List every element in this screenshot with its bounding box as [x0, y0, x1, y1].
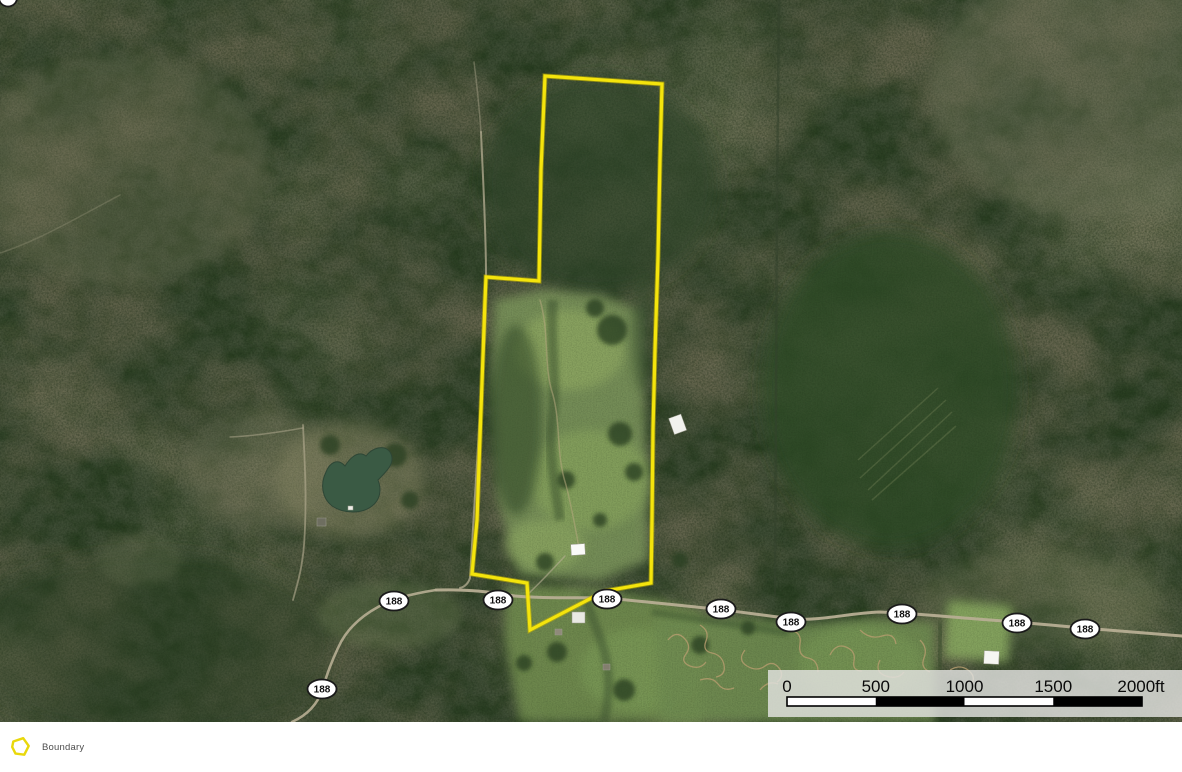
- road-shield: 188: [777, 613, 806, 632]
- scale-tick-label: 1500: [1034, 677, 1072, 696]
- road-shield-label: 188: [490, 596, 507, 607]
- shed-gray-1: [555, 629, 562, 635]
- map-view[interactable]: 188 188 188 188 188: [0, 0, 1182, 722]
- scale-tick-label: 2000ft: [1117, 677, 1165, 696]
- road-shield: 188: [1003, 614, 1032, 633]
- satellite-terrain: [0, 0, 1182, 722]
- road-shield-label: 188: [1077, 625, 1094, 636]
- scale-tick-label: 1000: [946, 677, 984, 696]
- scale-bar-segment-black: [1053, 697, 1142, 706]
- road-shield-label: 188: [783, 618, 800, 629]
- road-shield: 188: [888, 605, 917, 624]
- shed-dock: [348, 506, 353, 510]
- road-shield: 188: [380, 592, 409, 611]
- map-legend: Boundary: [0, 722, 1182, 772]
- scale-tick-label: 500: [862, 677, 890, 696]
- page: 188 188 188 188 188: [0, 0, 1182, 772]
- house-white: [571, 544, 586, 556]
- road-shield-label: 188: [1009, 619, 1026, 630]
- road-shield-label: 188: [386, 597, 403, 608]
- shed-dark: [317, 518, 326, 526]
- road-shield-label: 188: [894, 610, 911, 621]
- road-shield: 188: [707, 600, 736, 619]
- shed-gray-2: [603, 664, 610, 670]
- road-shield-label: 188: [599, 595, 616, 606]
- legend-item-label: Boundary: [42, 742, 84, 753]
- boundary-polygon-icon: [10, 736, 32, 758]
- scale-tick-label: 0: [782, 677, 791, 696]
- road-shield: 188: [308, 680, 337, 699]
- scale-bar-segment-black: [876, 697, 965, 706]
- road-shield: 188: [1071, 620, 1100, 639]
- barn-white-east: [984, 651, 1000, 665]
- road-shield-label: 188: [314, 685, 331, 696]
- road-shield: 188: [484, 591, 513, 610]
- road-shield-label: 188: [713, 605, 730, 616]
- scale-bar: 0 500 1000 1500 2000ft: [768, 670, 1182, 717]
- building-white: [572, 612, 585, 623]
- legend-item-boundary: Boundary: [10, 736, 84, 758]
- road-shield: 188: [593, 590, 622, 609]
